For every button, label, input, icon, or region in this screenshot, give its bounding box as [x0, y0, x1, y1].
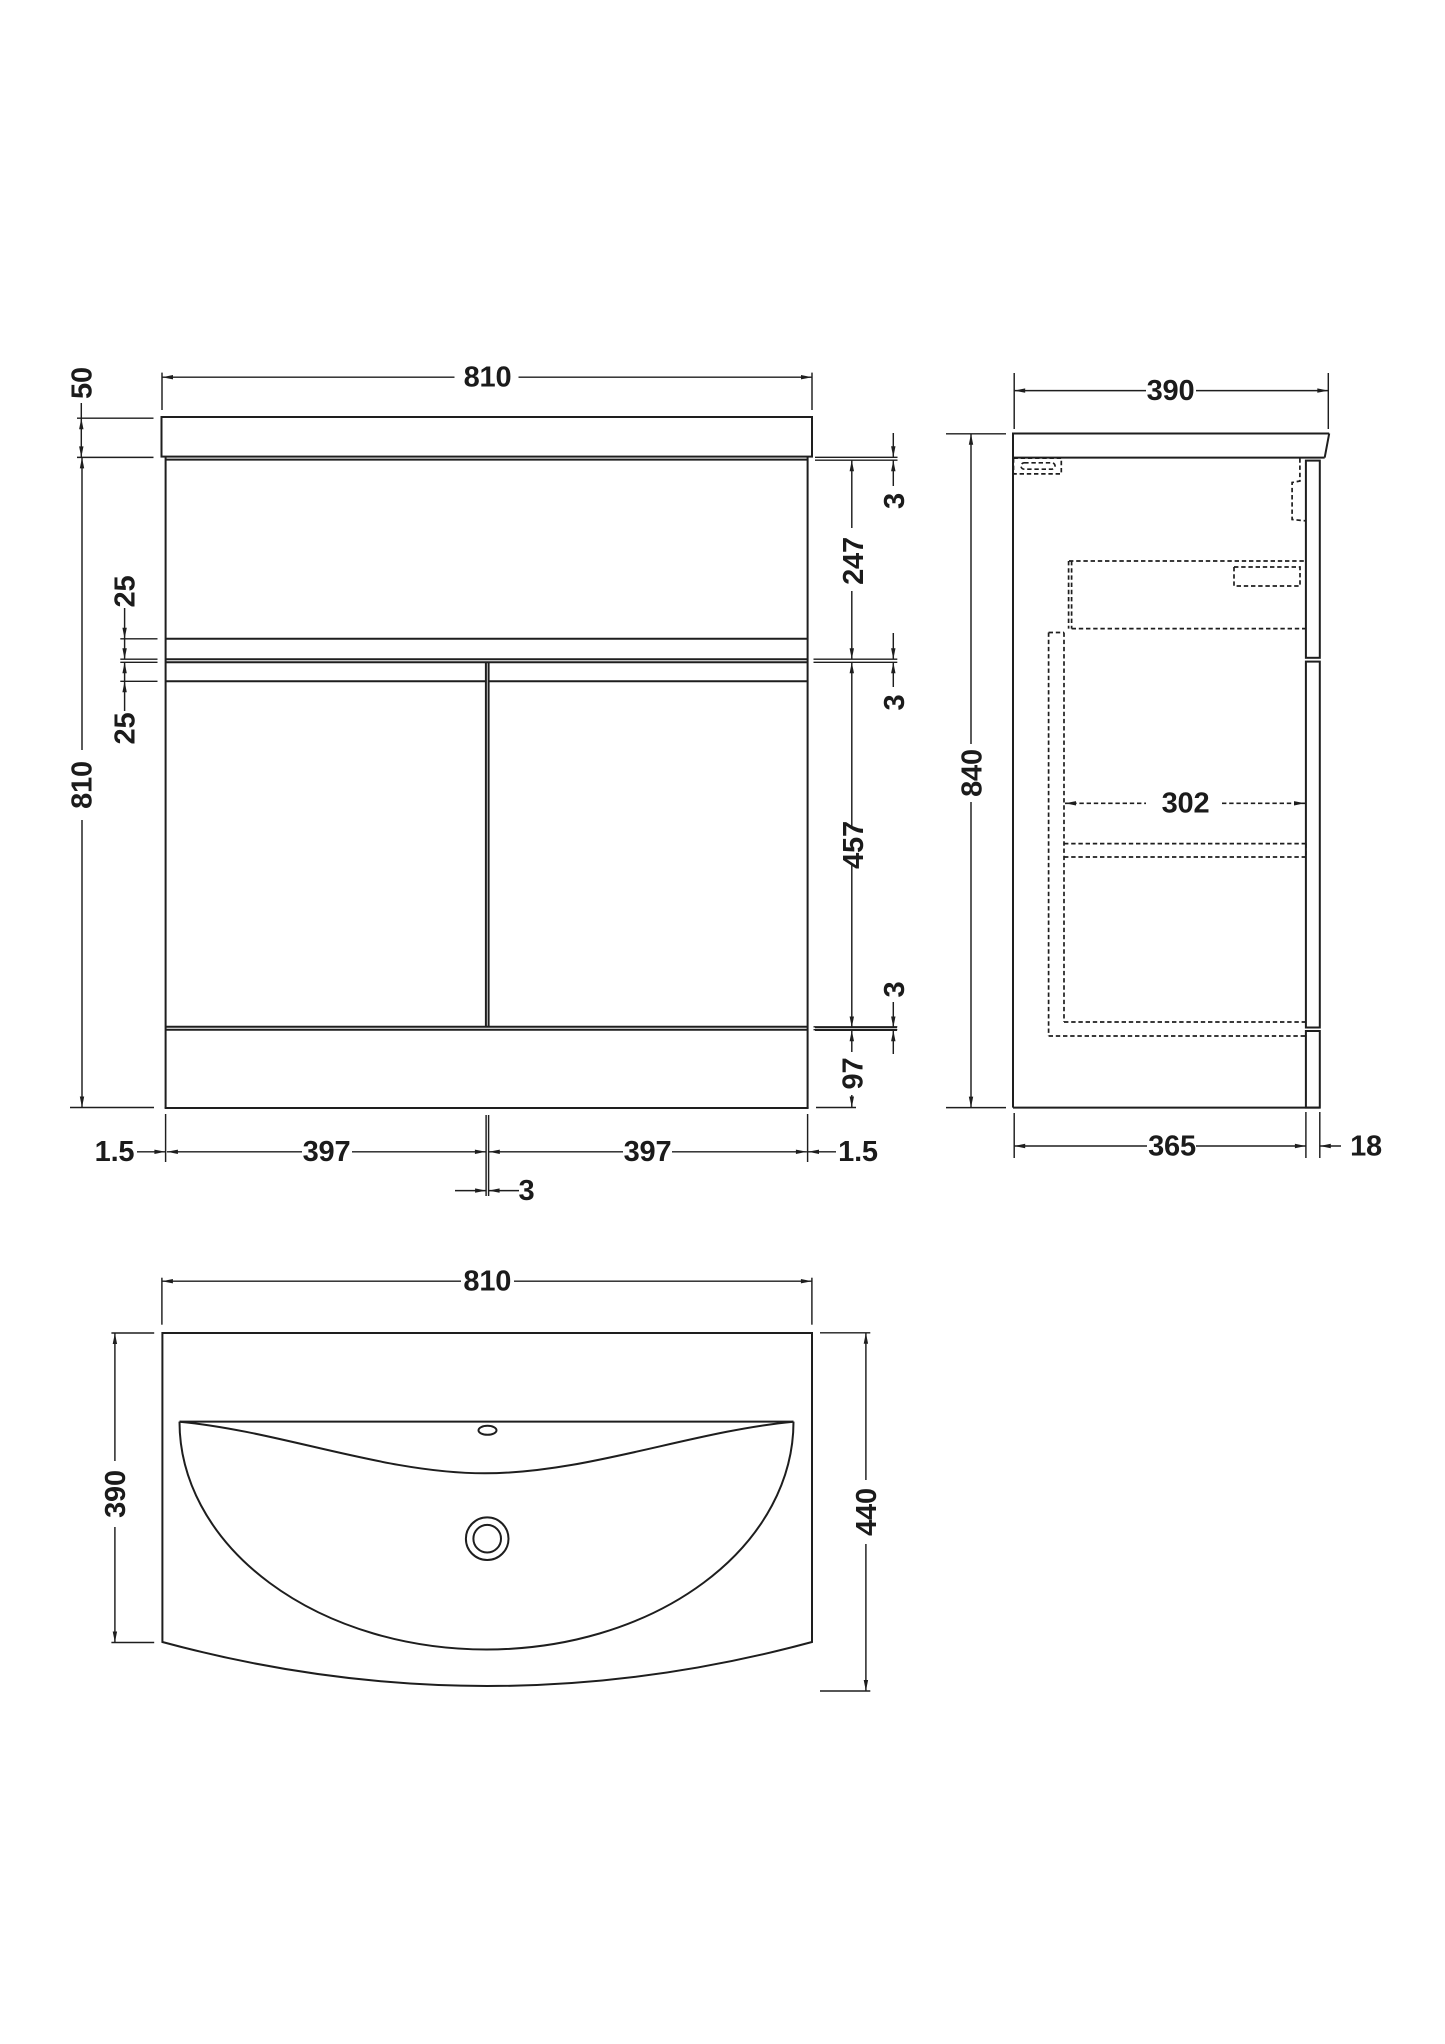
- svg-text:3: 3: [879, 694, 911, 710]
- svg-text:247: 247: [838, 537, 870, 585]
- svg-text:810: 810: [464, 362, 512, 394]
- svg-text:1.5: 1.5: [95, 1136, 135, 1168]
- svg-text:397: 397: [303, 1136, 351, 1168]
- svg-text:390: 390: [100, 1470, 132, 1518]
- svg-text:97: 97: [837, 1058, 869, 1090]
- svg-text:1.5: 1.5: [838, 1136, 878, 1168]
- svg-text:810: 810: [67, 761, 99, 809]
- svg-text:302: 302: [1162, 788, 1210, 820]
- svg-text:25: 25: [110, 713, 142, 745]
- svg-text:457: 457: [838, 821, 870, 869]
- svg-text:3: 3: [879, 981, 911, 997]
- svg-text:18: 18: [1350, 1130, 1382, 1162]
- svg-text:390: 390: [1147, 375, 1195, 407]
- svg-text:50: 50: [67, 367, 99, 399]
- svg-text:3: 3: [879, 493, 911, 509]
- svg-text:440: 440: [851, 1488, 883, 1536]
- svg-text:810: 810: [463, 1266, 511, 1298]
- svg-text:365: 365: [1148, 1130, 1196, 1162]
- svg-text:25: 25: [110, 576, 142, 608]
- svg-text:397: 397: [624, 1136, 672, 1168]
- svg-text:3: 3: [519, 1175, 535, 1207]
- svg-text:840: 840: [956, 749, 988, 797]
